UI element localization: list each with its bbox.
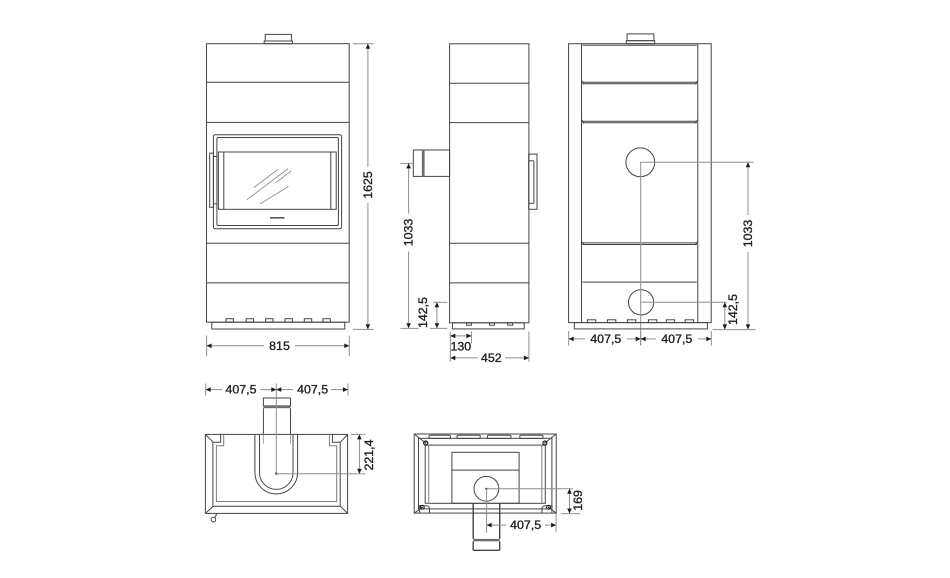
svg-text:407,5: 407,5: [590, 332, 621, 346]
svg-text:130: 130: [450, 340, 471, 354]
svg-text:452: 452: [481, 351, 502, 365]
svg-text:1033: 1033: [402, 219, 416, 247]
svg-text:407,5: 407,5: [225, 383, 256, 397]
svg-text:407,5: 407,5: [297, 383, 328, 397]
svg-text:142,5: 142,5: [726, 294, 740, 325]
svg-text:1033: 1033: [741, 220, 755, 248]
svg-text:169: 169: [571, 490, 585, 511]
svg-text:407,5: 407,5: [510, 518, 541, 532]
svg-text:815: 815: [269, 339, 290, 353]
svg-text:1625: 1625: [361, 171, 375, 199]
svg-text:221,4: 221,4: [362, 439, 376, 470]
svg-text:142,5: 142,5: [416, 297, 430, 328]
svg-text:407,5: 407,5: [661, 332, 692, 346]
